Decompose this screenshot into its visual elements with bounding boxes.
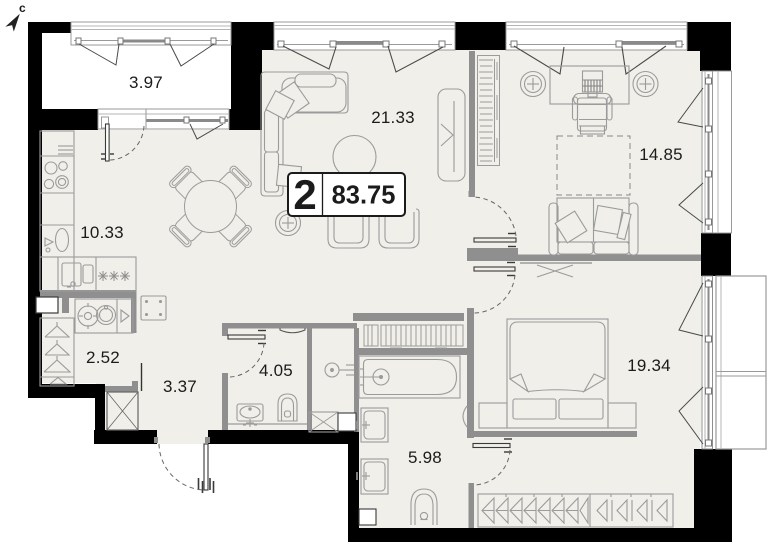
svg-text:10.33: 10.33 (80, 223, 124, 242)
svg-text:2.52: 2.52 (86, 348, 120, 367)
svg-text:2: 2 (293, 171, 316, 218)
svg-text:21.33: 21.33 (371, 108, 415, 127)
svg-text:3.97: 3.97 (129, 73, 163, 92)
svg-text:19.34: 19.34 (627, 356, 671, 375)
svg-text:83.75: 83.75 (332, 182, 396, 210)
svg-text:5.98: 5.98 (408, 448, 442, 467)
svg-text:4.05: 4.05 (259, 361, 293, 380)
svg-text:с: с (19, 1, 26, 15)
svg-text:14.85: 14.85 (639, 145, 683, 164)
svg-text:3.37: 3.37 (163, 377, 197, 396)
